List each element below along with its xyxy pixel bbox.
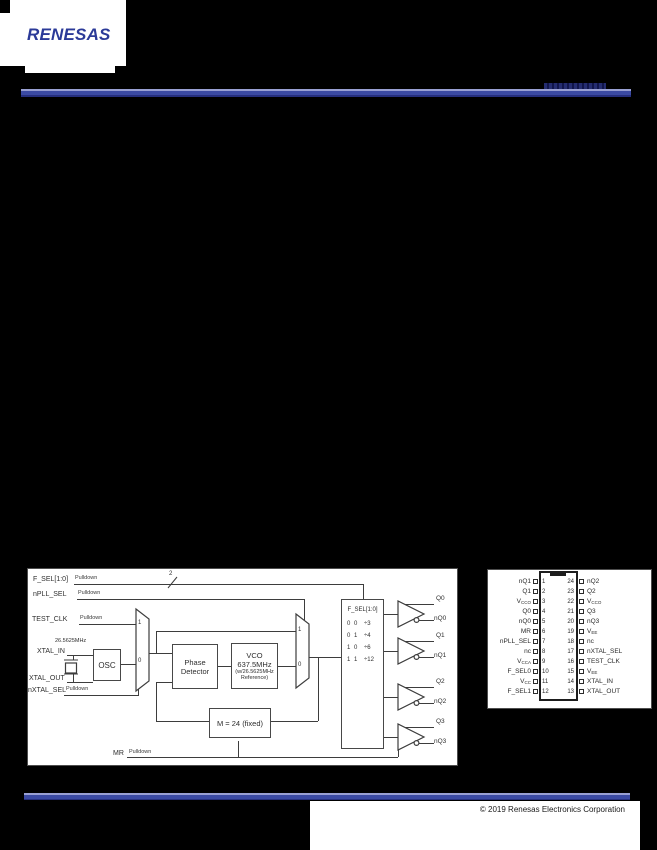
pin-right-number: 14 — [558, 678, 574, 686]
pin-label-subscript: CCO — [521, 600, 531, 605]
block-diagram: F_SEL[1:0] Pulldown 2 nPLL_SEL Pulldown … — [27, 568, 458, 766]
pin-right-pad — [579, 669, 584, 674]
pin-label-base: MR — [521, 628, 531, 635]
pin-left-pad — [533, 639, 538, 644]
pin-right-pad — [579, 619, 584, 624]
pin-right-number: 22 — [558, 598, 574, 606]
pin-right-label: VCCO — [587, 598, 601, 607]
pin-left-label: nPLL_SEL — [488, 638, 531, 646]
pin-right-label: Q2 — [587, 588, 596, 596]
output-buffer-triangle — [398, 601, 424, 627]
pin-label-base: F_SEL1 — [508, 688, 532, 695]
pin-left-label: nQ0 — [488, 618, 531, 626]
pin-left-number: 4 — [542, 608, 545, 616]
pin-right-pad — [579, 589, 584, 594]
output-buffer-triangle — [398, 724, 424, 750]
renesas-logo: RENESAS — [27, 25, 111, 45]
output-buffer-triangle — [398, 638, 424, 664]
pin-left-number: 8 — [542, 648, 545, 656]
pin-right-number: 21 — [558, 608, 574, 616]
pin-right-label: VEE — [587, 628, 597, 637]
mux2-shape — [296, 614, 309, 688]
pin-left-label: F_SEL1 — [488, 688, 531, 696]
pin-right-label: XTAL_IN — [587, 678, 613, 686]
pin-label-subscript: EE — [591, 670, 597, 675]
pin-right-pad — [579, 649, 584, 654]
copyright-text: © 2019 Renesas Electronics Corporation — [480, 805, 625, 814]
pin-left-label: VCC — [488, 678, 531, 687]
pin-label-base: nQ2 — [587, 578, 599, 585]
pin-label-subscript: CC — [525, 680, 532, 685]
pin-right-number: 16 — [558, 658, 574, 666]
pin-label-base: nQ1 — [519, 578, 531, 585]
pin-label-subscript: EE — [591, 630, 597, 635]
pin-left-pad — [533, 609, 538, 614]
pin-left-label: nQ1 — [488, 578, 531, 586]
pin-right-pad — [579, 599, 584, 604]
pin-label-base: nQ0 — [519, 618, 531, 625]
pin-left-pad — [533, 689, 538, 694]
pin-left-number: 7 — [542, 638, 545, 646]
pin-right-label: nc — [587, 638, 594, 646]
pin-label-base: nPLL_SEL — [500, 638, 531, 645]
pin-left-label: Q1 — [488, 588, 531, 596]
pin-left-pad — [533, 579, 538, 584]
pin-left-number: 9 — [542, 658, 545, 666]
pin-label-base: XTAL_IN — [587, 678, 613, 685]
pin-left-pad — [533, 679, 538, 684]
pin-right-number: 13 — [558, 688, 574, 696]
pin-left-pad — [533, 619, 538, 624]
mux2-input-1-label: 1 — [298, 627, 301, 634]
pin-right-number: 19 — [558, 628, 574, 636]
copyright-box: © 2019 Renesas Electronics Corporation — [310, 801, 640, 850]
pin-right-pad — [579, 609, 584, 614]
pin-left-number: 3 — [542, 598, 545, 606]
package-pin1-notch — [550, 571, 566, 576]
pin-left-number: 12 — [542, 688, 549, 696]
pin-left-number: 6 — [542, 628, 545, 636]
pin-left-label: Q0 — [488, 608, 531, 616]
pin-left-pad — [533, 599, 538, 604]
datasheet-page: { "header": { "logo_text": "RENESAS", "b… — [0, 0, 657, 850]
pin-right-label: TEST_CLK — [587, 658, 620, 666]
pin-right-number: 23 — [558, 588, 574, 596]
pin-left-pad — [533, 659, 538, 664]
pin-left-number: 1 — [542, 578, 545, 586]
pin-label-base: nc — [524, 648, 531, 655]
pin-assignment-diagram: nQ11Q12VCCO3Q04nQ05MR6nPLL_SEL7nc8VCCA9F… — [487, 569, 652, 709]
inversion-bubble — [414, 741, 419, 746]
pin-label-base: Q2 — [587, 588, 596, 595]
pin-right-pad — [579, 629, 584, 634]
pin-right-pad — [579, 639, 584, 644]
pin-left-number: 5 — [542, 618, 545, 626]
pin-right-label: Q3 — [587, 608, 596, 616]
pin-left-label: VCCA — [488, 658, 531, 667]
pin-right-pad — [579, 679, 584, 684]
pin-right-pad — [579, 659, 584, 664]
pin-label-base: XTAL_OUT — [587, 688, 620, 695]
pin-right-pad — [579, 579, 584, 584]
pin-label-base: nc — [587, 638, 594, 645]
crystal-body — [66, 663, 77, 673]
pin-right-number: 24 — [558, 578, 574, 586]
pin-label-base: nXTAL_SEL — [587, 648, 622, 655]
pin-label-base: nQ3 — [587, 618, 599, 625]
mux2-input-0-label: 0 — [298, 662, 301, 669]
pin-right-number: 18 — [558, 638, 574, 646]
inversion-bubble — [414, 655, 419, 660]
footer-rule-bar — [24, 793, 630, 800]
pin-label-base: Q0 — [522, 608, 531, 615]
pin-left-label: F_SEL0 — [488, 668, 531, 676]
pin-label-subscript: CCO — [591, 600, 601, 605]
pin-left-pad — [533, 669, 538, 674]
pin-label-subscript: CCA — [521, 660, 531, 665]
pin-label-base: TEST_CLK — [587, 658, 620, 665]
header-rule-bar — [21, 89, 631, 97]
inversion-bubble — [414, 618, 419, 623]
output-buffer-triangle — [398, 684, 424, 710]
pin-right-label: nQ3 — [587, 618, 599, 626]
pin-left-number: 2 — [542, 588, 545, 596]
pin-right-label: XTAL_OUT — [587, 688, 620, 696]
pin-left-pad — [533, 589, 538, 594]
inversion-bubble — [414, 701, 419, 706]
pin-right-label: nQ2 — [587, 578, 599, 586]
mux1-input-0-label: 0 — [138, 658, 141, 665]
pin-right-label: VEE — [587, 668, 597, 677]
pin-left-label: nc — [488, 648, 531, 656]
pin-left-label: MR — [488, 628, 531, 636]
pin-left-number: 10 — [542, 668, 549, 676]
pin-left-number: 11 — [542, 678, 548, 686]
pin-left-label: VCCO — [488, 598, 531, 607]
pin-right-label: nXTAL_SEL — [587, 648, 622, 656]
pin-right-number: 17 — [558, 648, 574, 656]
pin-right-number: 20 — [558, 618, 574, 626]
pin-label-base: F_SEL0 — [508, 668, 532, 675]
pin-left-pad — [533, 649, 538, 654]
pin-label-base: Q3 — [587, 608, 596, 615]
pin-label-base: Q1 — [522, 588, 531, 595]
pin-right-pad — [579, 689, 584, 694]
logo-background-strip — [25, 66, 115, 73]
pin-right-number: 15 — [558, 668, 574, 676]
logo-background-sliver — [0, 13, 10, 66]
mux1-input-1-label: 1 — [138, 620, 141, 627]
bus-width-slash — [168, 577, 177, 588]
pin-left-pad — [533, 629, 538, 634]
diagram-shapes — [28, 569, 457, 765]
